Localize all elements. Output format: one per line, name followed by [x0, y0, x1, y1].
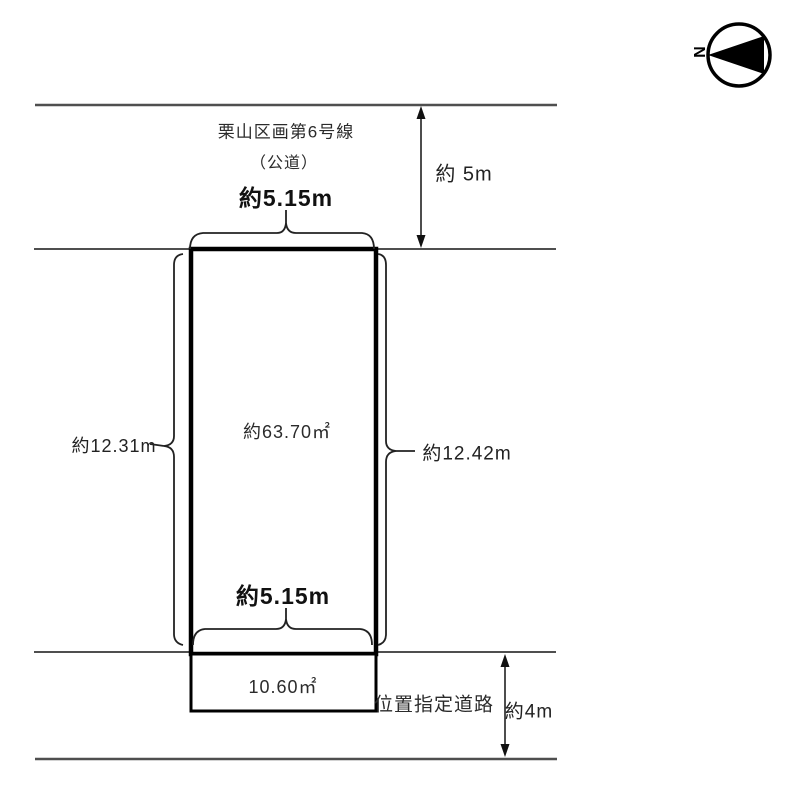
bottom-road-width-arrowhead-up: [501, 654, 510, 667]
bottom-road-width-label: 約4m: [505, 697, 553, 724]
left-side-brace: [164, 254, 183, 645]
diagram-geometry: [0, 0, 787, 790]
bottom-road-name-label: 位置指定道路: [374, 690, 494, 717]
top-frontage-brace: [190, 210, 374, 249]
parcel-top-frontage-label: 約5.15m: [239, 179, 333, 213]
top-road-width-label: 約 5m: [435, 158, 492, 187]
bottom-road-width-arrowhead-down: [501, 744, 510, 757]
plot-diagram: 栗山区画第6号線 （公道） 約5.15m 約 5m 約63.70㎡ 約12.31…: [0, 0, 787, 790]
top-road-width-arrowhead-down: [417, 235, 426, 248]
top-road-width-arrowhead-up: [417, 106, 426, 119]
right-side-brace: [378, 254, 396, 645]
top-road-type-label: （公道）: [250, 149, 318, 173]
parcel-bottom-frontage-label: 約5.15m: [236, 577, 330, 611]
compass-north-arrow-icon: [708, 36, 764, 74]
parcel-left-side-label: 約12.31m: [71, 432, 156, 458]
extension-area-label: 10.60㎡: [248, 673, 317, 699]
parcel-right-side-label: 約12.42m: [422, 439, 511, 466]
compass-north-label: N: [689, 46, 707, 58]
parcel-area-label: 約63.70㎡: [243, 418, 331, 444]
top-road-name-label: 栗山区画第6号線: [218, 118, 354, 143]
